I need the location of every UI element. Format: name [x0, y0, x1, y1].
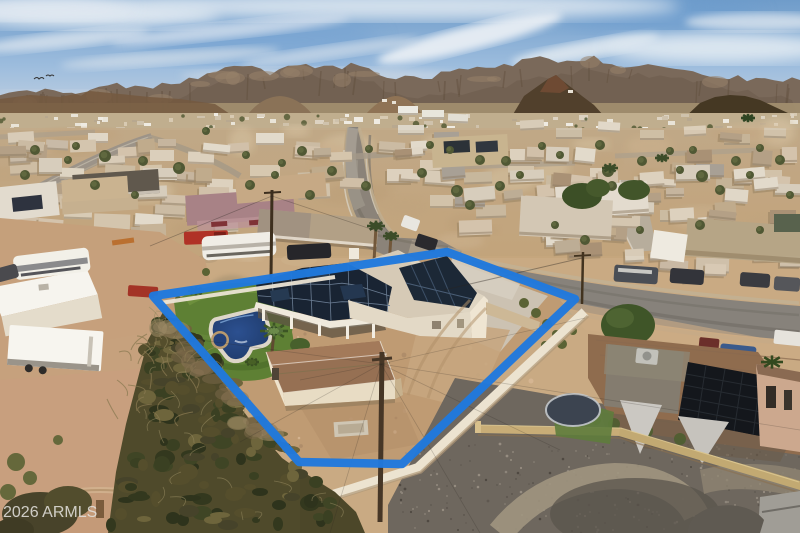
svg-text:2026 ARMLS: 2026 ARMLS	[3, 504, 97, 521]
